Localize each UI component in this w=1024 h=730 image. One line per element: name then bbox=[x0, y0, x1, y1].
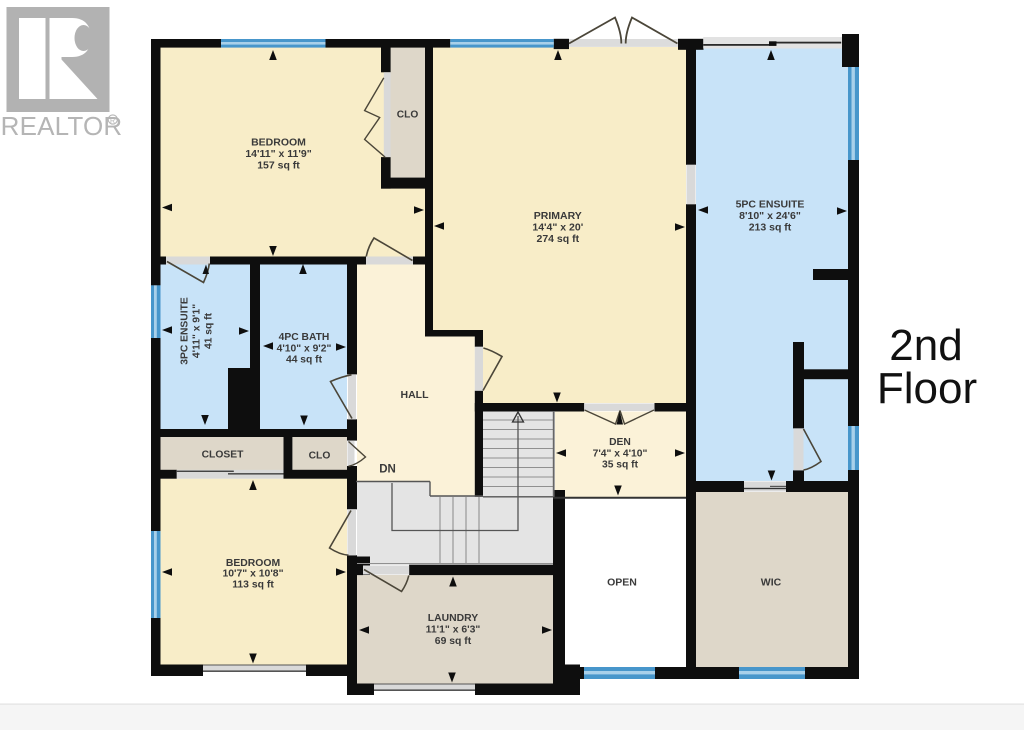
svg-text:5PC ENSUITE: 5PC ENSUITE bbox=[736, 199, 805, 211]
svg-text:14'4" x 20': 14'4" x 20' bbox=[532, 222, 583, 234]
svg-text:274 sq ft: 274 sq ft bbox=[536, 233, 579, 245]
svg-text:R: R bbox=[110, 118, 115, 125]
svg-text:BEDROOM: BEDROOM bbox=[226, 558, 280, 569]
svg-text:11'1" x 6'3": 11'1" x 6'3" bbox=[426, 625, 481, 636]
svg-text:2nd: 2nd bbox=[889, 321, 962, 370]
svg-text:DEN: DEN bbox=[609, 437, 631, 448]
svg-text:WIC: WIC bbox=[761, 576, 782, 588]
svg-text:7'4" x 4'10": 7'4" x 4'10" bbox=[593, 448, 648, 459]
svg-text:213 sq ft: 213 sq ft bbox=[749, 222, 792, 234]
svg-text:PRIMARY: PRIMARY bbox=[534, 210, 582, 222]
svg-text:8'10" x 24'6": 8'10" x 24'6" bbox=[739, 210, 801, 222]
svg-text:4PC BATH: 4PC BATH bbox=[279, 332, 330, 343]
svg-text:OPEN: OPEN bbox=[607, 576, 637, 588]
svg-text:69 sq ft: 69 sq ft bbox=[435, 636, 472, 647]
svg-text:CLOSET: CLOSET bbox=[202, 449, 244, 460]
svg-text:HALL: HALL bbox=[401, 389, 430, 401]
svg-text:CLO: CLO bbox=[309, 450, 331, 461]
svg-text:REALTOR: REALTOR bbox=[1, 111, 123, 141]
svg-text:44 sq ft: 44 sq ft bbox=[286, 355, 323, 366]
svg-text:113 sq ft: 113 sq ft bbox=[232, 580, 274, 591]
svg-text:10'7" x 10'8": 10'7" x 10'8" bbox=[222, 569, 283, 580]
svg-text:14'11" x 11'9": 14'11" x 11'9" bbox=[245, 148, 311, 160]
svg-text:CLO: CLO bbox=[397, 110, 419, 121]
svg-text:41 sq ft: 41 sq ft bbox=[204, 312, 215, 349]
svg-text:DN: DN bbox=[379, 464, 396, 476]
svg-text:4'11" x 9'1": 4'11" x 9'1" bbox=[192, 304, 203, 358]
svg-text:35 sq ft: 35 sq ft bbox=[602, 460, 639, 471]
svg-text:BEDROOM: BEDROOM bbox=[251, 136, 306, 148]
svg-text:4'10" x 9'2": 4'10" x 9'2" bbox=[277, 343, 332, 354]
svg-text:LAUNDRY: LAUNDRY bbox=[428, 613, 478, 624]
svg-text:157 sq ft: 157 sq ft bbox=[257, 159, 300, 171]
svg-text:Floor: Floor bbox=[877, 364, 977, 413]
svg-text:3PC ENSUITE: 3PC ENSUITE bbox=[180, 297, 191, 365]
